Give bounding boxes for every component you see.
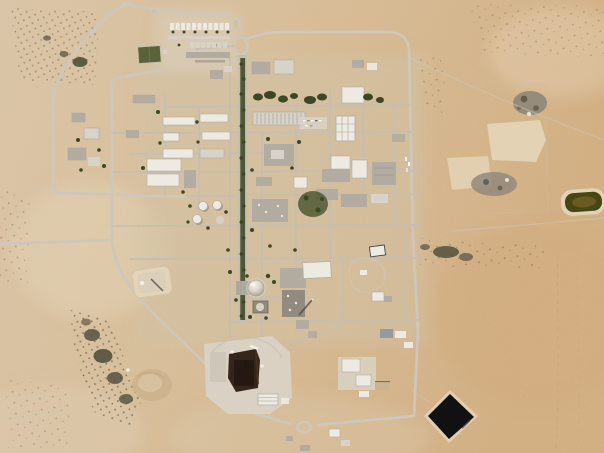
satellite-image — [0, 0, 604, 453]
photo-grain-overlay — [0, 0, 604, 453]
